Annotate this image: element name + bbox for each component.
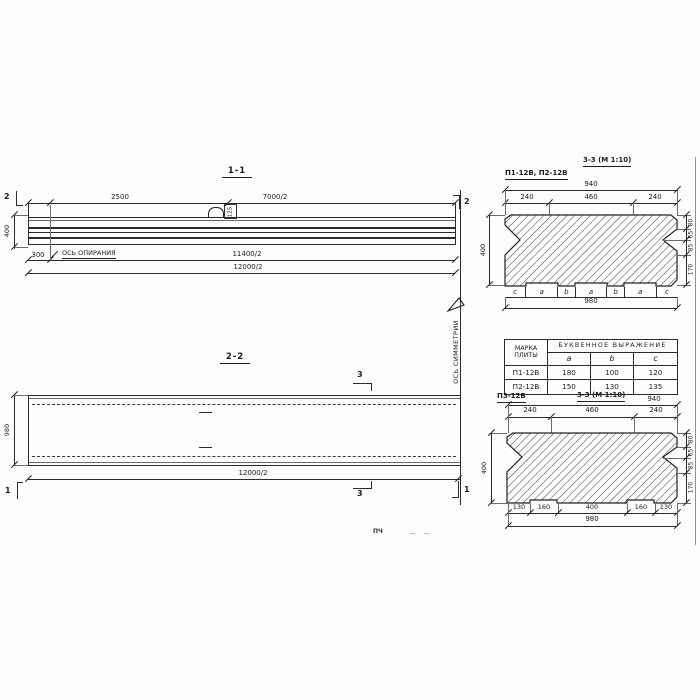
beam-bottom-edge bbox=[28, 244, 455, 245]
plan-bottom-edge bbox=[28, 465, 460, 466]
dim-400: 400 bbox=[578, 504, 606, 511]
section-3-3-title-top: 3-3 (М 1:10) bbox=[583, 157, 631, 167]
ext-line bbox=[633, 203, 634, 215]
letter-cell: а bbox=[525, 287, 557, 297]
loop-tag-label: 125 bbox=[228, 206, 234, 217]
ext-line bbox=[14, 247, 28, 248]
table-cell: 100 bbox=[591, 366, 634, 380]
cut-marker-foot bbox=[371, 481, 372, 489]
loop-tag-box: 125 bbox=[224, 204, 237, 219]
table-cell: 120 bbox=[634, 366, 678, 380]
dim-line bbox=[505, 203, 677, 204]
dim-12000-2-plan: 12000/2 bbox=[232, 470, 274, 478]
dim-460: 460 bbox=[576, 194, 606, 202]
letter-cell: а bbox=[624, 287, 656, 297]
table-col-c: c bbox=[634, 353, 678, 366]
dim-300: 300 bbox=[26, 252, 50, 259]
cut-marker-line bbox=[353, 383, 372, 384]
dim-980-left: 980 bbox=[3, 419, 11, 441]
dim-7000-2: 7000/2 bbox=[254, 194, 296, 202]
ext-line bbox=[489, 215, 505, 216]
plate-marks-label: П1-12В, П2-12В bbox=[505, 170, 568, 180]
dim-2500: 2500 bbox=[100, 194, 140, 202]
dim-85: 85 bbox=[688, 459, 695, 473]
dim-460: 460 bbox=[577, 407, 607, 415]
dim-240: 240 bbox=[512, 194, 542, 202]
section-2-2-title: 2-2 bbox=[220, 353, 250, 364]
dim-tick bbox=[674, 304, 681, 311]
plan-dashed-line bbox=[32, 404, 456, 405]
ext-line bbox=[677, 190, 678, 215]
dim-160: 160 bbox=[627, 504, 655, 511]
beam-line bbox=[28, 237, 455, 239]
dim-line bbox=[28, 479, 460, 480]
beam-right-edge bbox=[455, 203, 456, 245]
dim-tick bbox=[452, 269, 459, 276]
dim-line-vert bbox=[491, 433, 492, 503]
ext-line bbox=[549, 203, 550, 215]
ext-line bbox=[14, 395, 28, 396]
cut-marker-foot bbox=[453, 195, 460, 196]
table-row: П1-12В 180 100 120 bbox=[505, 366, 678, 380]
dim-line-vert bbox=[14, 395, 15, 466]
dim-11400-2: 11400/2 bbox=[226, 251, 268, 259]
dim-line bbox=[508, 417, 677, 418]
ext-line bbox=[677, 405, 678, 433]
ext-line bbox=[489, 285, 505, 286]
table-col-a: a bbox=[548, 353, 591, 366]
beam-left-edge bbox=[28, 203, 29, 245]
scan-artifact-text: ПЧ bbox=[373, 529, 383, 536]
beam-line bbox=[28, 220, 455, 221]
dim-940: 940 bbox=[576, 181, 606, 189]
cut-marker-1-right: 1 bbox=[464, 486, 470, 495]
dim-240: 240 bbox=[515, 407, 545, 415]
dim-line bbox=[505, 308, 677, 309]
dim-line bbox=[505, 190, 677, 191]
letter-cell: с bbox=[656, 287, 677, 297]
drawing-sheet: 1-1 2500 7000/2 2 2 125 300 ОСЬ ОПИРАНИЯ… bbox=[0, 0, 700, 700]
cut-marker-foot bbox=[371, 383, 372, 391]
beam-line bbox=[28, 227, 455, 229]
dim-400-left-top-section: 400 bbox=[479, 239, 487, 261]
scan-artifact-mark bbox=[410, 533, 415, 534]
plan-line bbox=[28, 462, 460, 463]
dim-160: 160 bbox=[530, 504, 558, 511]
dim-line bbox=[28, 203, 455, 204]
dim-tick bbox=[674, 522, 681, 529]
sheet-border-line bbox=[695, 157, 696, 545]
ext-line bbox=[14, 465, 28, 466]
plan-left-edge bbox=[28, 395, 29, 466]
dim-980-bottom-section: 980 bbox=[572, 516, 612, 524]
center-mark bbox=[199, 412, 212, 413]
dim-170: 170 bbox=[688, 262, 695, 278]
cut-marker-foot bbox=[16, 205, 23, 206]
dim-65: 65 bbox=[688, 446, 695, 460]
letter-cell: b bbox=[557, 287, 574, 297]
cut-marker-2-right: 2 bbox=[464, 198, 470, 207]
dim-240: 240 bbox=[640, 194, 670, 202]
table-header-expr: БУКВЕННОЕ ВЫРАЖЕНИЕ bbox=[548, 340, 678, 353]
table-cell: 135 bbox=[634, 380, 678, 395]
plate-spec-table: МАРКА ПЛИТЫ БУКВЕННОЕ ВЫРАЖЕНИЕ a b c П1… bbox=[504, 339, 678, 395]
symmetry-axis-label: ОСЬ СИММЕТРИИ bbox=[452, 313, 460, 391]
section-3-3-title-bottom: 3-3 (М 1:10) bbox=[577, 392, 625, 402]
dim-940-bottom-section: 940 bbox=[641, 396, 667, 404]
plan-top-edge bbox=[28, 395, 460, 396]
dim-85: 85 bbox=[688, 241, 695, 255]
cut-marker-1-left: 1 bbox=[5, 487, 11, 496]
dim-65: 65 bbox=[688, 228, 695, 242]
bearing-axis-line bbox=[50, 205, 51, 258]
dim-170: 170 bbox=[688, 480, 695, 496]
dim-line-vert bbox=[489, 215, 490, 285]
cut-marker-3-bottom: 3 bbox=[357, 490, 363, 499]
dim-400-left-bottom-section: 400 bbox=[480, 457, 488, 479]
letter-cell: b bbox=[606, 287, 623, 297]
ext-line bbox=[551, 417, 552, 433]
cut-marker-2-left: 2 bbox=[4, 193, 10, 202]
cut-marker-line bbox=[17, 482, 18, 499]
ext-line bbox=[491, 433, 507, 434]
table-cell: 180 bbox=[548, 366, 591, 380]
table-col-b: b bbox=[591, 353, 634, 366]
dim-line bbox=[28, 273, 455, 274]
center-mark bbox=[199, 447, 212, 448]
ext-line bbox=[14, 215, 28, 216]
letter-cell: с bbox=[505, 287, 525, 297]
ext-line bbox=[505, 190, 506, 215]
dim-line bbox=[508, 526, 677, 527]
cross-section-bottom bbox=[507, 433, 677, 503]
cut-marker-line bbox=[458, 481, 459, 498]
beam-line bbox=[28, 232, 455, 233]
scan-artifact-mark bbox=[424, 533, 429, 534]
bearing-axis-label: ОСЬ ОПИРАНИЯ bbox=[62, 250, 116, 259]
cut-marker-line bbox=[16, 191, 17, 205]
plan-dashed-line bbox=[32, 456, 456, 457]
dim-80: 80 bbox=[688, 433, 695, 447]
ext-line bbox=[634, 417, 635, 433]
dim-400-left: 400 bbox=[3, 220, 11, 242]
cut-marker-foot bbox=[17, 482, 23, 483]
dim-12000-2: 12000/2 bbox=[227, 264, 269, 272]
cross-section-top bbox=[505, 215, 677, 286]
cut-marker-foot bbox=[452, 497, 458, 498]
ext-line bbox=[508, 405, 509, 433]
table-cell-mark: П1-12В bbox=[505, 366, 548, 380]
beam-top-edge bbox=[28, 217, 455, 218]
table-header-mark: МАРКА ПЛИТЫ bbox=[505, 340, 548, 366]
lifting-loop bbox=[208, 207, 224, 218]
symmetry-axis-line bbox=[460, 190, 461, 505]
cut-marker-3-top: 3 bbox=[357, 371, 363, 380]
plan-line bbox=[28, 398, 460, 399]
dim-240: 240 bbox=[641, 407, 671, 415]
leader-slash bbox=[51, 251, 58, 258]
table-header-mark-line2: ПЛИТЫ bbox=[505, 353, 547, 360]
dim-tick bbox=[452, 256, 459, 263]
letter-cell: а bbox=[575, 287, 607, 297]
section-1-1-title: 1-1 bbox=[222, 167, 252, 178]
dim-line bbox=[28, 260, 455, 261]
symmetry-flag-icon bbox=[446, 296, 466, 312]
dim-980-top-section: 980 bbox=[573, 298, 609, 306]
